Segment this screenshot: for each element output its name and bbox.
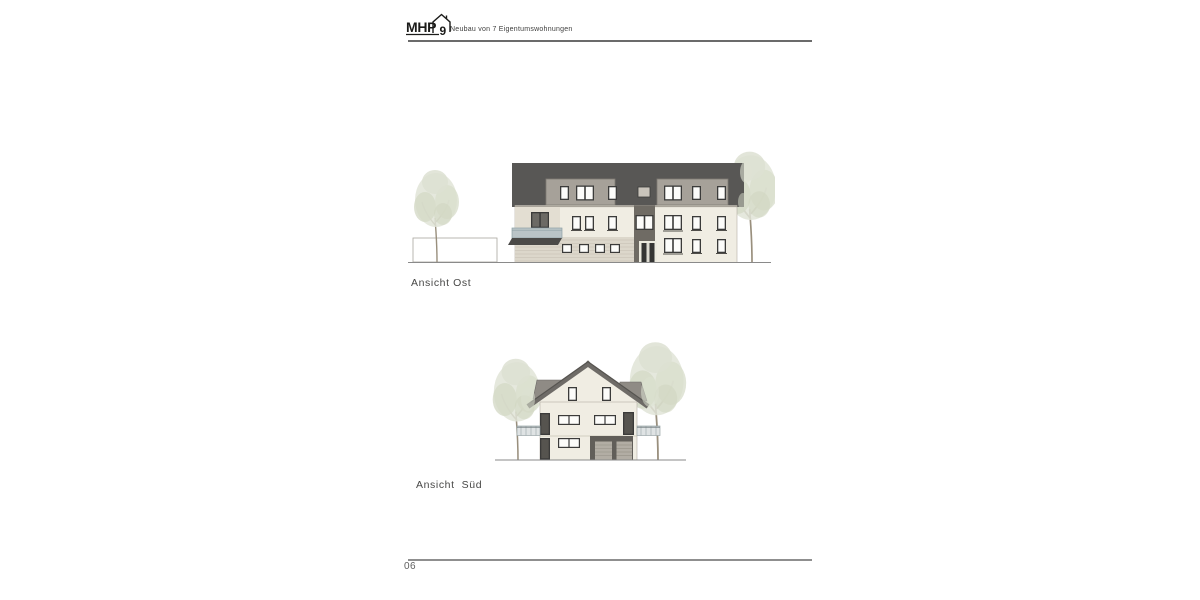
right-dormer — [657, 179, 728, 205]
elevation-east-drawing — [405, 140, 775, 266]
garage — [590, 436, 633, 460]
elevation-south-drawing — [490, 337, 690, 463]
logo-text: MHP — [406, 19, 436, 35]
entrance-door — [639, 241, 657, 263]
building-east — [508, 163, 744, 263]
left-tree — [493, 359, 543, 460]
roof-window — [638, 187, 650, 197]
balcony-railing-left — [517, 426, 540, 436]
project-title: Neubau von 7 Eigentumswohnungen — [450, 26, 573, 33]
stairwell — [634, 206, 657, 263]
balcony-railing-right — [637, 426, 660, 436]
elevation-south-label: Ansicht Süd — [416, 479, 482, 491]
drawing-sheet: MHP 9 Neubau von 7 Eigentumswohnungen — [0, 0, 1200, 600]
footer-rule — [408, 559, 812, 561]
balcony — [508, 207, 562, 245]
elevation-east-label: Ansicht Ost — [411, 277, 471, 289]
balcony-underside — [508, 238, 562, 245]
balcony-glass-railing — [512, 228, 562, 238]
left-dormer — [546, 179, 617, 205]
header-rule — [408, 40, 812, 42]
page-number: 06 — [404, 561, 416, 572]
fence-outline — [413, 238, 497, 262]
logo-number: 9 — [440, 24, 447, 38]
